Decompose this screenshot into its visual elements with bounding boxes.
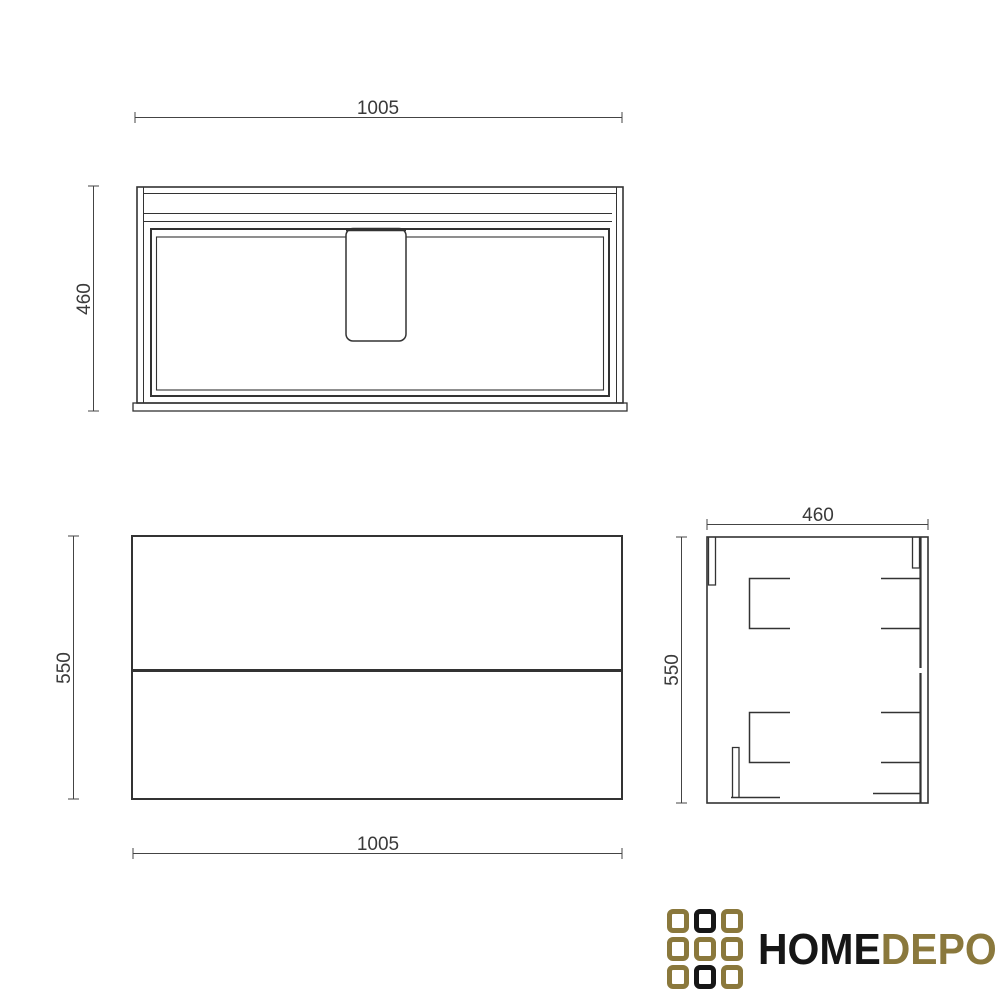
logo-grid-cell bbox=[667, 937, 689, 961]
dimension-label: 1005 bbox=[357, 98, 399, 119]
logo-grid-cell bbox=[694, 965, 716, 989]
logo-grid-cell bbox=[667, 909, 689, 933]
dimension-label: 1005 bbox=[357, 834, 399, 855]
front-view: 550 1005 bbox=[54, 536, 622, 859]
wall-bracket-bottom-left bbox=[733, 748, 740, 798]
drawer-slide-upper-bracket bbox=[750, 579, 791, 629]
logo-grid-cell bbox=[667, 965, 689, 989]
logo-wordmark: HOMEDEPO bbox=[758, 926, 997, 972]
logo-grid-cell bbox=[721, 965, 743, 989]
dimension-label: 460 bbox=[74, 283, 95, 315]
side-view-height-dimension: 550 bbox=[662, 537, 687, 803]
front-edge-band bbox=[133, 403, 627, 411]
logo-grid-cell bbox=[694, 937, 716, 961]
homedepo-logo: HOMEDEPO bbox=[667, 907, 1000, 991]
top-view-width-dimension: 1005 bbox=[135, 98, 622, 123]
logo-grid-cell bbox=[694, 909, 716, 933]
top-view-depth-dimension: 460 bbox=[74, 186, 99, 411]
front-view-width-dimension: 1005 bbox=[133, 834, 622, 859]
dimension-label: 550 bbox=[54, 652, 75, 684]
dimension-label: 550 bbox=[662, 654, 683, 686]
dimension-label: 460 bbox=[802, 505, 834, 526]
faucet-hole bbox=[346, 229, 406, 342]
wall-bracket-top-left bbox=[709, 537, 716, 585]
side-view: 460 550 bbox=[662, 505, 928, 803]
cabinet-front-outline bbox=[132, 536, 622, 799]
front-view-height-dimension: 550 bbox=[54, 536, 79, 799]
logo-text-depo: DEPO bbox=[881, 925, 997, 974]
logo-grid-cell bbox=[721, 909, 743, 933]
top-view: 1005 460 bbox=[74, 98, 627, 411]
drawer-slide-lower-bracket bbox=[750, 713, 791, 763]
logo-grid-icon bbox=[667, 909, 743, 989]
logo-grid-cell bbox=[721, 937, 743, 961]
side-view-depth-dimension: 460 bbox=[707, 505, 928, 530]
wall-bracket-top-right bbox=[913, 537, 920, 568]
logo-text-home: HOME bbox=[758, 925, 881, 974]
technical-drawing: 1005 460 550 bbox=[0, 0, 1000, 1000]
